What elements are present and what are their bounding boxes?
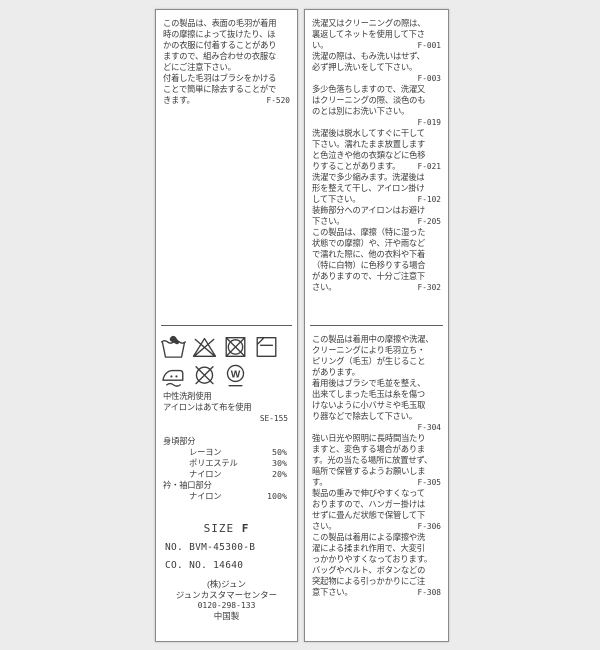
text-line: さい。F-302 [312, 282, 441, 293]
text-line: 洗濯の際は、もみ洗いはせず、 [312, 51, 441, 62]
text-line: 身頃部分 [163, 436, 287, 447]
text-line: ナイロン20% [163, 469, 287, 480]
text-line: この製品は着用中の摩擦や洗濯、 [312, 334, 441, 345]
washing-instructions-text: 洗濯又はクリーニングの際は、裏返してネットを使用して下さい。F-001洗濯の際は… [312, 18, 441, 293]
do-not-dry-clean-icon [191, 363, 218, 389]
text-line: ナイロン100% [163, 491, 287, 502]
text-line: り器などで除去して下さい。 [312, 411, 441, 422]
text-line: 製品の重みで伸びやすくなって [312, 488, 441, 499]
text-line: F-019 [312, 117, 441, 128]
manufacturer-block: (株)ジュン ジュンカスタマーセンター 0120-298-133 中国製 [156, 579, 297, 622]
text-line: 必ず押し洗いをして下さい。 [312, 62, 441, 73]
text-line: のとは別にお洗い下さい。 [312, 106, 441, 117]
text-line: 形を整えて干し、アイロン掛け [312, 183, 441, 194]
care-symbols-row-1 [160, 334, 280, 360]
size-label: SIZE F [156, 522, 297, 535]
text-line: この製品は、摩擦（特に湿った [312, 227, 441, 238]
care-symbols-row-2: W [160, 363, 249, 389]
iron-with-pressing-cloth-icon [160, 363, 187, 389]
text-line: かの衣服に付着することがあり [163, 40, 290, 51]
text-line: す。光の当たる場所に放置せず、 [312, 455, 441, 466]
text-line: りすることがあります。F-021 [312, 161, 441, 172]
customer-center: ジュンカスタマーセンター [156, 590, 297, 601]
care-label-left-panel: この製品は、表面の毛羽が着用時の摩擦によって抜けたり、ほかの衣服に付着することが… [155, 9, 298, 642]
text-line: と色泣きや他の衣類などに色移 [312, 150, 441, 161]
phone-number: 0120-298-133 [156, 601, 297, 612]
text-line: この製品は着用による摩擦や洗 [312, 532, 441, 543]
divider-line [310, 325, 443, 326]
text-line: 付着した毛羽はブラシをかける [163, 73, 290, 84]
text-line: きます。F-520 [163, 95, 290, 106]
text-line: がありますので、十分ご注意下 [312, 271, 441, 282]
text-line: 洗濯後は脱水してすぐに干して [312, 128, 441, 139]
fabric-caution-text: この製品は、表面の毛羽が着用時の摩擦によって抜けたり、ほかの衣服に付着することが… [163, 18, 290, 106]
text-line: ますと、変色する場合がありま [312, 444, 441, 455]
text-line: （特に白物）に色移りする場合 [312, 260, 441, 271]
care-label-right-panel: 洗濯又はクリーニングの際は、裏返してネットを使用して下さい。F-001洗濯の際は… [304, 9, 449, 642]
text-line: す。F-305 [312, 477, 441, 488]
text-line: 濯による揉まれ作用で、大変引 [312, 543, 441, 554]
text-line: 着用後はブラシで毛並を整え、 [312, 378, 441, 389]
text-line: バッグやベルト、ボタンなどの [312, 565, 441, 576]
professional-wet-clean-icon: W [222, 363, 249, 389]
hand-wash-icon [160, 334, 187, 360]
text-line: F-304 [312, 422, 441, 433]
text-line: けないように小バサミや毛玉取 [312, 400, 441, 411]
handling-instructions-text: この製品は着用中の摩擦や洗濯、クリーニングにより毛羽立ち・ピリング（毛玉）が生じ… [312, 334, 441, 598]
text-line: で濡れた際に、他の衣料や下着 [312, 249, 441, 260]
text-line: っかかりやすくなっております。 [312, 554, 441, 565]
text-line: F-003 [312, 73, 441, 84]
text-line: SE-155 [163, 413, 288, 424]
text-line: 突起物による引っかかりにご注 [312, 576, 441, 587]
text-line: ピリング（毛玉）が生じること [312, 356, 441, 367]
text-line: 衿・袖口部分 [163, 480, 287, 491]
text-line: どにご注意下さい。 [163, 62, 290, 73]
dry-flat-in-shade-icon [253, 334, 280, 360]
text-line: せずに畳んだ状態で保管して下 [312, 510, 441, 521]
text-line: があります。 [312, 367, 441, 378]
text-line: 洗濯又はクリーニングの際は、 [312, 18, 441, 29]
text-line: この製品は、表面の毛羽が着用 [163, 18, 290, 29]
country-of-origin: 中国製 [156, 611, 297, 622]
text-line: 強い日光や照明に長時間当たり [312, 433, 441, 444]
text-line: クリーニングにより毛羽立ち・ [312, 345, 441, 356]
text-line: 出来てしまった毛玉は糸を傷つ [312, 389, 441, 400]
text-line: アイロンはあて布を使用 [163, 402, 288, 413]
product-info: SIZE F NO. BVM-45300-B CO. NO. 14640 (株)… [156, 522, 297, 622]
do-not-tumble-dry-icon [222, 334, 249, 360]
detergent-notes: 中性洗剤使用アイロンはあて布を使用SE-155 [163, 391, 288, 424]
text-line: い。F-001 [312, 40, 441, 51]
text-line: 時の摩擦によって抜けたり、ほ [163, 29, 290, 40]
text-line: 状態での摩擦）や、汗や雨など [312, 238, 441, 249]
text-line: 装飾部分へのアイロンはお避け [312, 205, 441, 216]
text-line: はクリーニングの際、淡色のも [312, 95, 441, 106]
fiber-composition: 身頃部分レーヨン50%ポリエステル30%ナイロン20%衿・袖口部分ナイロン100… [163, 436, 287, 502]
text-line: 意下さい。F-308 [312, 587, 441, 598]
do-not-bleach-icon [191, 334, 218, 360]
text-line: 多少色落ちしますので、洗濯又 [312, 84, 441, 95]
text-line: 中性洗剤使用 [163, 391, 288, 402]
size-value: F [242, 522, 250, 535]
text-line: 下さい。濡れたまま放置します [312, 139, 441, 150]
text-line: 洗濯で多少縮みます。洗濯後は [312, 172, 441, 183]
text-line: ますので、組み合わせの衣服な [163, 51, 290, 62]
text-line: レーヨン50% [163, 447, 287, 458]
co-number: CO. NO. 14640 [156, 560, 297, 571]
text-line: さい。F-306 [312, 521, 441, 532]
text-line: して下さい。F-102 [312, 194, 441, 205]
text-line: ポリエステル30% [163, 458, 287, 469]
text-line: 裏返してネットを使用して下さ [312, 29, 441, 40]
text-line: 暗所で保管するようお願いしま [312, 466, 441, 477]
wet-clean-letter: W [231, 369, 241, 380]
product-number: NO. BVM-45300-B [156, 542, 297, 553]
text-line: ことで簡単に除去することがで [163, 84, 290, 95]
text-line: 下さい。F-205 [312, 216, 441, 227]
care-label-photo: この製品は、表面の毛羽が着用時の摩擦によって抜けたり、ほかの衣服に付着することが… [0, 0, 600, 650]
divider-line [161, 325, 292, 326]
company-name: (株)ジュン [156, 579, 297, 590]
size-word: SIZE [204, 522, 235, 535]
text-line: おりますので、ハンガー掛けは [312, 499, 441, 510]
